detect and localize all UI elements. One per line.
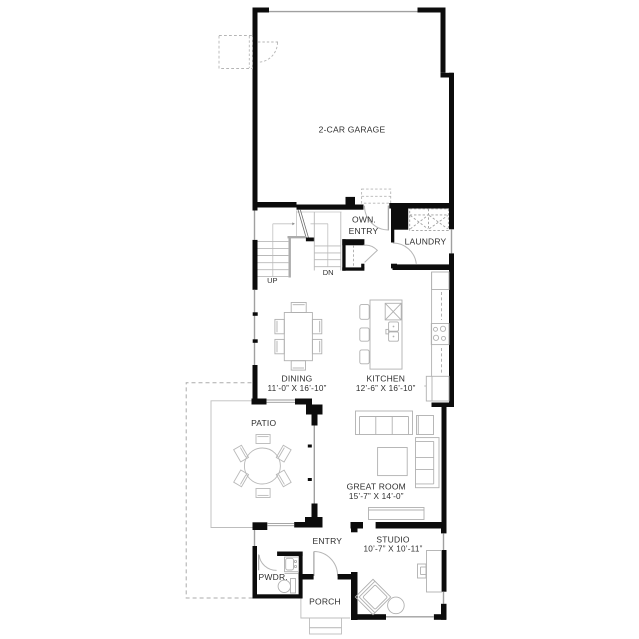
svg-text:GREAT ROOM: GREAT ROOM <box>347 481 406 491</box>
svg-text:15’-7” X 14’-0”: 15’-7” X 14’-0” <box>349 492 404 501</box>
svg-text:LAUNDRY: LAUNDRY <box>405 236 447 246</box>
svg-text:DN: DN <box>323 268 334 277</box>
svg-text:KITCHEN: KITCHEN <box>366 373 405 383</box>
svg-text:PATIO: PATIO <box>251 418 276 428</box>
svg-text:PWDR.: PWDR. <box>259 572 288 582</box>
svg-text:UP: UP <box>267 276 277 285</box>
svg-text:ENTRY: ENTRY <box>312 536 342 546</box>
svg-text:11’-0” X 16’-10”: 11’-0” X 16’-10” <box>267 384 326 393</box>
svg-text:2-CAR GARAGE: 2-CAR GARAGE <box>319 124 386 134</box>
svg-text:10’-7” X 10’-11”: 10’-7” X 10’-11” <box>363 544 422 553</box>
svg-text:ENTRY: ENTRY <box>349 226 379 236</box>
svg-text:PORCH: PORCH <box>309 596 341 606</box>
svg-text:OWN.: OWN. <box>352 214 376 224</box>
svg-text:12’-6” X 16’-10”: 12’-6” X 16’-10” <box>356 384 416 393</box>
svg-text:DINING: DINING <box>282 374 313 384</box>
svg-text:STUDIO: STUDIO <box>376 534 410 544</box>
